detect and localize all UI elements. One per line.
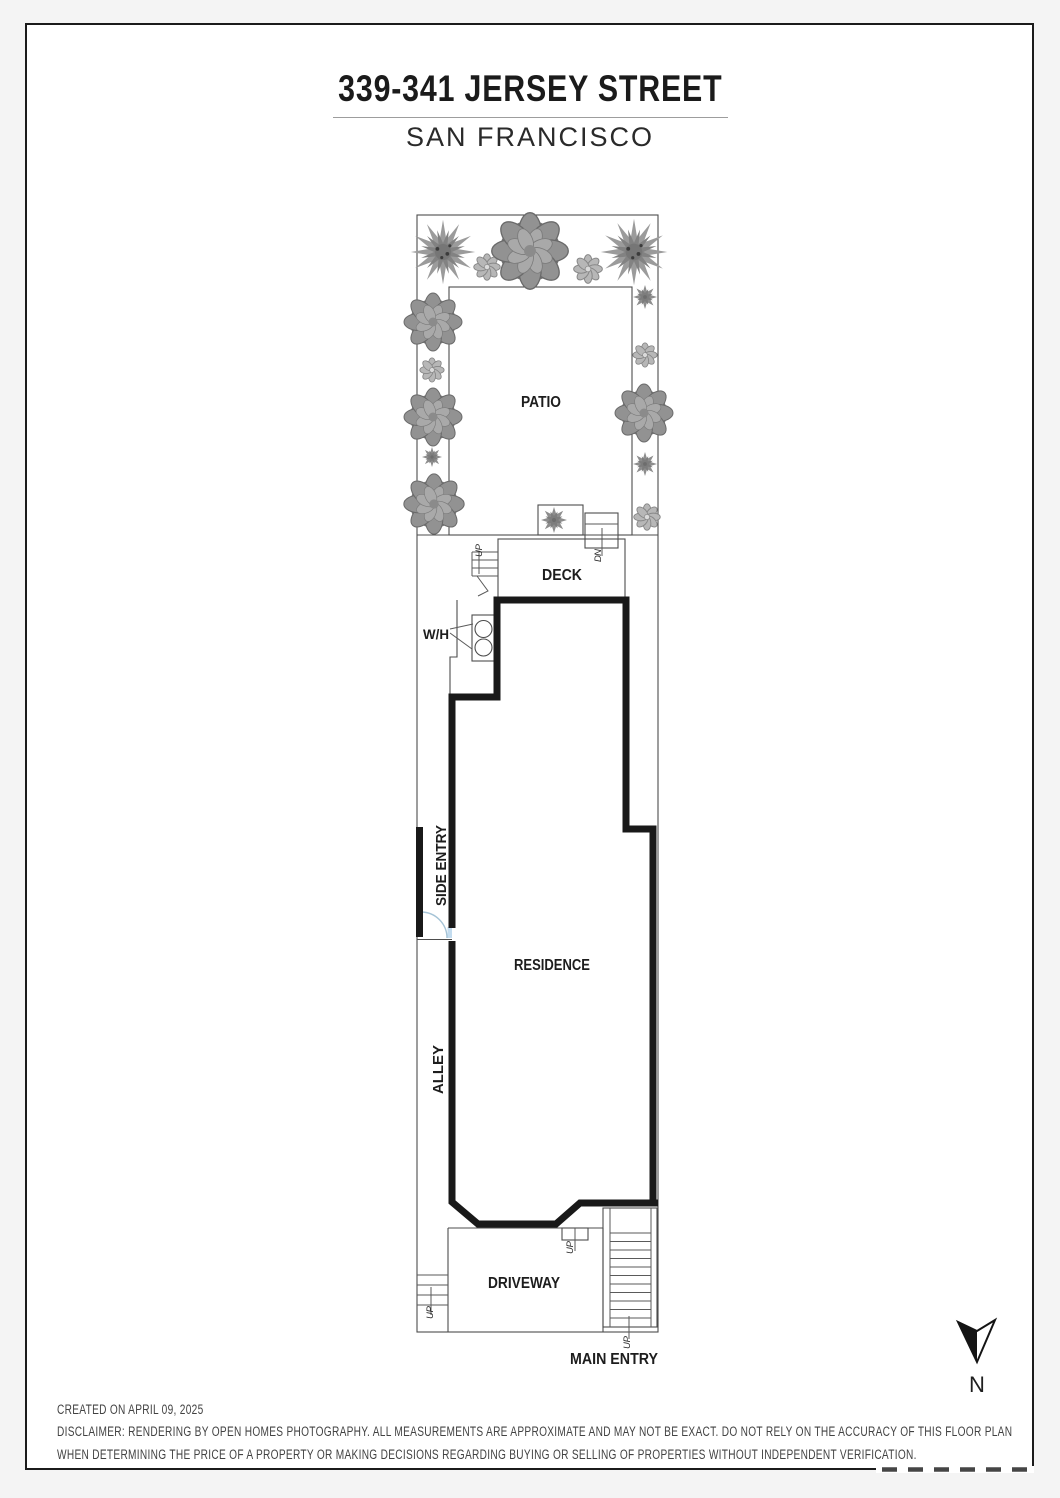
plant-spiky	[633, 285, 657, 309]
footer: CREATED ON APRIL 09, 2025 DISCLAIMER: RE…	[57, 1399, 1060, 1466]
patio-outline	[449, 287, 632, 535]
door-jamb-accent	[448, 927, 453, 938]
residence-walls	[452, 600, 658, 1224]
plant-spiky	[422, 447, 442, 467]
plant-bush	[492, 213, 569, 290]
disclaimer-line-2: WHEN DETERMINING THE PRICE OF A PROPERTY…	[57, 1444, 1012, 1466]
label-patio: PATIO	[521, 394, 561, 411]
door-swing-arc	[421, 912, 447, 938]
label-driveway: DRIVEWAY	[488, 1275, 560, 1292]
floor-plan: PATIO DECK RESIDENCE DRIVEWAY MAIN ENTRY…	[0, 0, 1060, 1498]
wh-leader-lines	[450, 624, 473, 649]
plants-layer	[404, 213, 673, 534]
plant-flower	[420, 358, 444, 382]
water-heater-tank	[475, 639, 492, 656]
north-arrow-icon: N	[958, 1320, 995, 1397]
plant-spiky	[541, 507, 567, 533]
plant-flower	[633, 343, 657, 367]
created-date: CREATED ON APRIL 09, 2025	[57, 1399, 1012, 1421]
label-water-heater: W/H	[423, 626, 449, 642]
label-up-deck: UP	[474, 543, 485, 557]
water-heater-area	[450, 600, 495, 695]
label-alley: ALLEY	[431, 1045, 447, 1094]
page: 339-341 JERSEY STREET SAN FRANCISCO	[0, 0, 1060, 1498]
plant-bush	[404, 293, 462, 351]
plant-bush	[615, 384, 673, 442]
plant-bush	[404, 388, 462, 446]
label-north: N	[969, 1372, 985, 1397]
deck-up-stairs	[472, 552, 498, 596]
label-residence: RESIDENCE	[514, 957, 590, 974]
plant-bush	[404, 474, 464, 534]
plant-tree	[411, 220, 475, 284]
label-up-main: UP	[622, 1335, 633, 1349]
label-main-entry: MAIN ENTRY	[570, 1351, 658, 1368]
label-dn-patio: DN	[593, 549, 604, 562]
plant-flower	[634, 504, 660, 530]
label-side-entry: SIDE ENTRY	[434, 825, 450, 906]
label-deck: DECK	[542, 567, 582, 584]
label-up-alley: UP	[425, 1305, 436, 1319]
disclaimer-line-1: DISCLAIMER: RENDERING BY OPEN HOMES PHOT…	[57, 1421, 1012, 1443]
plant-flower	[574, 255, 603, 284]
plant-tree	[601, 219, 668, 286]
main-entry-stairs	[603, 1208, 657, 1339]
plant-spiky	[633, 452, 657, 476]
label-up-driveway: UP	[565, 1240, 576, 1254]
water-heater-tank	[475, 621, 492, 638]
watermark-artifact	[876, 1466, 1034, 1473]
